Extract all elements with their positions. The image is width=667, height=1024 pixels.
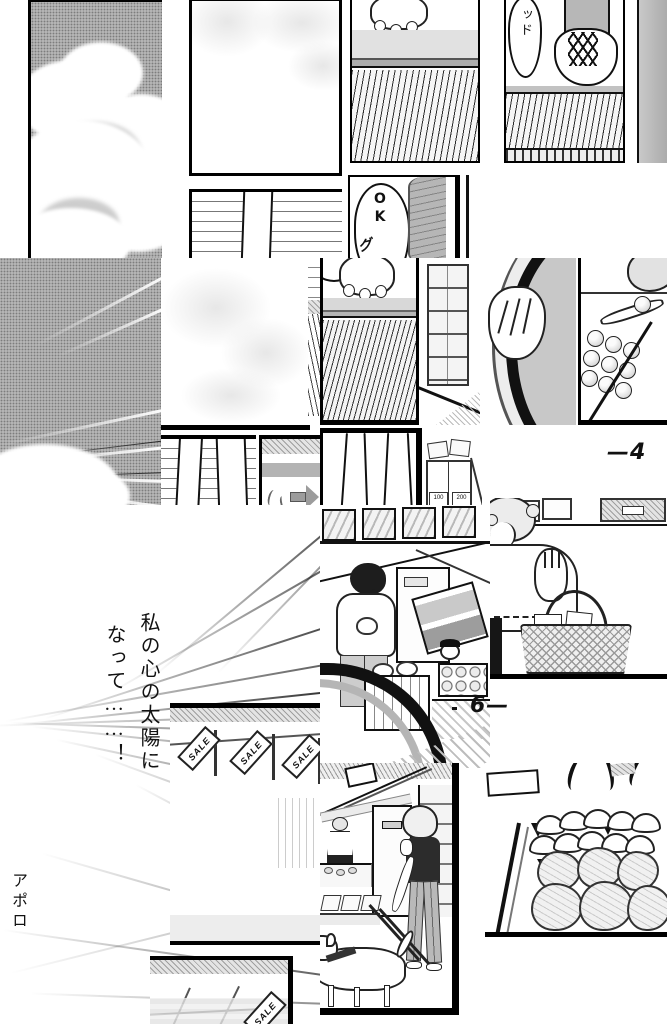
panel-fragment-border: [466, 175, 480, 262]
dog-ear: [326, 933, 336, 947]
panel-store-shelf: [419, 258, 480, 425]
shirt-logo: [356, 617, 378, 635]
top-shelf-box: [542, 498, 572, 520]
hair-curl: [526, 504, 540, 518]
dog-leg: [328, 985, 334, 1007]
ceiling-band: [150, 960, 288, 974]
panel-sale-banners: SALE SALE SALE: [170, 703, 322, 945]
panel-dog-paw-step-2: [320, 258, 419, 425]
page-number-dot: [452, 707, 457, 710]
clerk-vest: [327, 831, 353, 857]
sign-band: [262, 439, 322, 454]
panel-fragment-wedge: [637, 0, 667, 163]
clerk-head: [332, 817, 348, 831]
panel-sky-clouds-light-2: [161, 258, 310, 430]
fruit: [581, 370, 598, 387]
page-number-upper: —4: [607, 440, 646, 465]
food-blob: [348, 867, 357, 874]
speech-text: ッド: [515, 8, 534, 38]
sale-text: SALE: [238, 739, 264, 767]
curtain: [408, 177, 446, 262]
leg-line: [383, 433, 389, 512]
girl-shoe: [406, 961, 422, 969]
fruit: [583, 350, 600, 367]
arrow-icon: [290, 492, 306, 502]
ceiling-band: [170, 708, 322, 722]
speed-line: [0, 408, 161, 446]
panel-sale-strip-2: SALE: [150, 956, 293, 1024]
finger-line: [544, 552, 546, 568]
step-edge: [506, 86, 623, 94]
cloud-blotch: [181, 368, 281, 423]
panel-sign-arrow: [259, 435, 322, 512]
fruit: [615, 382, 632, 399]
step-edge: [352, 60, 478, 68]
step-base: [506, 148, 623, 161]
sale-banner: SALE: [281, 734, 322, 779]
lettuce-head: [531, 883, 583, 931]
stand-divider: [448, 462, 449, 506]
speed-line: [57, 306, 161, 357]
panel-dog-paw-step-1: [350, 0, 480, 163]
step-riser: [323, 298, 416, 312]
glyph-fragment: [564, 763, 590, 793]
sale-text: SALE: [290, 743, 316, 771]
dog-leg: [384, 985, 390, 1007]
step-grate: [323, 320, 416, 420]
shopping-basket: [520, 624, 632, 674]
panel-shoe-step: ッド: [504, 0, 625, 163]
pole: [241, 192, 273, 262]
pole: [216, 439, 249, 512]
panel-lettuce-crate: [485, 763, 667, 937]
panel-sky-speedlines: [0, 258, 161, 510]
produce-scallop: [631, 813, 661, 833]
cloud-blotch: [288, 41, 342, 91]
stock-box: [322, 509, 356, 541]
sneaker-laces: [568, 32, 598, 66]
dog-leg: [354, 987, 360, 1007]
panel-legs-walk: [320, 428, 422, 512]
paw-toe: [343, 284, 355, 297]
carton-box: [320, 895, 341, 911]
panel-ok-curtain: OK グ: [348, 175, 460, 262]
dark-strip: [490, 618, 502, 674]
page-number-lower: 6—: [470, 693, 509, 718]
panel-storefront-pole-2: [161, 435, 256, 512]
shopper-arm: [599, 296, 665, 328]
shelf-lines: [278, 798, 318, 868]
carton-shelf-front: [320, 913, 380, 925]
panel-storefront-pole: [189, 189, 342, 262]
panel-guide-dog: [320, 763, 459, 1015]
speech-text: OK: [372, 191, 388, 227]
panel-snack-stand: 100 200: [424, 428, 482, 512]
banner-post: [272, 734, 275, 780]
clerk-apron-band: [327, 855, 353, 863]
fridge-label: [382, 821, 402, 829]
paw-toe: [375, 285, 387, 298]
carton-box: [340, 895, 361, 911]
panel-corner-box: [486, 769, 540, 797]
panel-fruit-shopper: [578, 258, 667, 425]
floor-wash: [170, 915, 322, 941]
finger-line: [558, 552, 560, 568]
lettuce-head: [627, 885, 667, 931]
step-grate: [506, 94, 623, 150]
panel-sky-clouds-light: [189, 0, 342, 176]
leg-line: [407, 433, 413, 512]
stock-box: [442, 506, 476, 538]
step-edge: [323, 312, 416, 318]
leg-line: [340, 433, 348, 512]
leg-line: [364, 433, 369, 512]
fruit: [605, 336, 622, 353]
monologue-line-1: 私の心の太陽に: [134, 612, 163, 773]
stock-box: [402, 507, 436, 539]
food-blob: [336, 869, 345, 876]
speed-line: [217, 535, 320, 673]
held-fruit: [634, 296, 651, 313]
fruit: [601, 356, 618, 373]
sign-band-gray: [262, 463, 322, 477]
step-grate: [352, 70, 478, 163]
panel-hand-handrail: [480, 258, 576, 425]
manga-page: ッド OK グ: [0, 0, 667, 1024]
package: [449, 439, 471, 457]
hanging-sign: [344, 763, 378, 788]
panel-sky-clouds-dark: [28, 0, 162, 262]
produce-bin: [438, 663, 488, 697]
shelf-case: [427, 264, 469, 386]
sfx-apollo: アポロ: [6, 872, 30, 932]
pole: [175, 439, 203, 512]
price-tag: 200: [452, 492, 471, 506]
price-tag: 100: [429, 492, 448, 506]
step-riser: [352, 30, 478, 60]
stock-box: [362, 508, 396, 540]
small-sign: [622, 506, 644, 515]
sale-text: SALE: [186, 735, 212, 763]
finger-line: [551, 550, 553, 568]
panel-supermarket: [320, 505, 490, 768]
girl-hair: [402, 805, 438, 839]
kid-hair: [440, 639, 460, 647]
monologue-line-2: なって……！: [100, 624, 129, 766]
ceiling-hatch: [320, 763, 452, 779]
shelf-line: [581, 292, 667, 294]
fixture-label: [404, 577, 428, 587]
shopper-hair: [627, 258, 667, 292]
package: [427, 441, 449, 460]
lettuce-head: [579, 881, 633, 931]
fruit: [587, 330, 604, 347]
girl-sleeve-frill: [400, 839, 413, 856]
panel-man-basket: [490, 498, 667, 679]
shelf-edge: [320, 541, 490, 544]
food-blob: [324, 867, 333, 874]
